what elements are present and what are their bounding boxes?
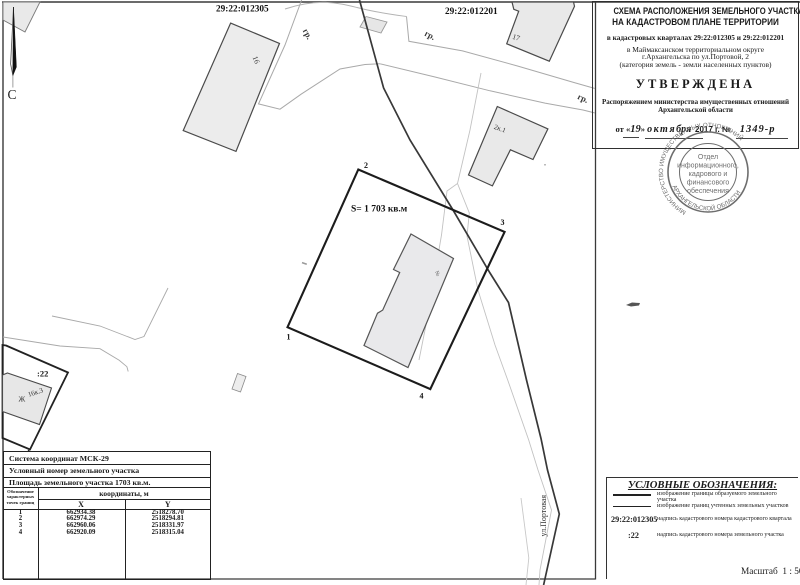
svg-text:финансового: финансового — [687, 180, 730, 187]
svg-text:3: 3 — [501, 218, 505, 227]
svg-text:кадрового и: кадрового и — [689, 171, 728, 178]
svg-text:S= 1 703 кв.м: S= 1 703 кв.м — [351, 205, 408, 215]
svg-text:С: С — [8, 87, 17, 102]
svg-text:2: 2 — [364, 161, 368, 170]
svg-text:гр.: гр. — [423, 28, 437, 42]
svg-text:информационного,: информационного, — [677, 163, 739, 170]
svg-text:4: 4 — [420, 392, 424, 401]
svg-text:гр.: гр. — [576, 91, 590, 105]
svg-text:1: 1 — [287, 333, 291, 342]
svg-text:29:22:012305: 29:22:012305 — [216, 5, 269, 15]
svg-text:ул.Портовая: ул.Портовая — [539, 495, 548, 537]
svg-text::22: :22 — [37, 369, 48, 379]
svg-text:гр.: гр. — [301, 27, 315, 41]
svg-text:29:22:012201: 29:22:012201 — [445, 7, 498, 17]
svg-text:обеспечения: обеспечения — [687, 187, 729, 195]
svg-text:Ж: Ж — [19, 395, 26, 404]
svg-text:Отдел: Отдел — [698, 154, 718, 161]
